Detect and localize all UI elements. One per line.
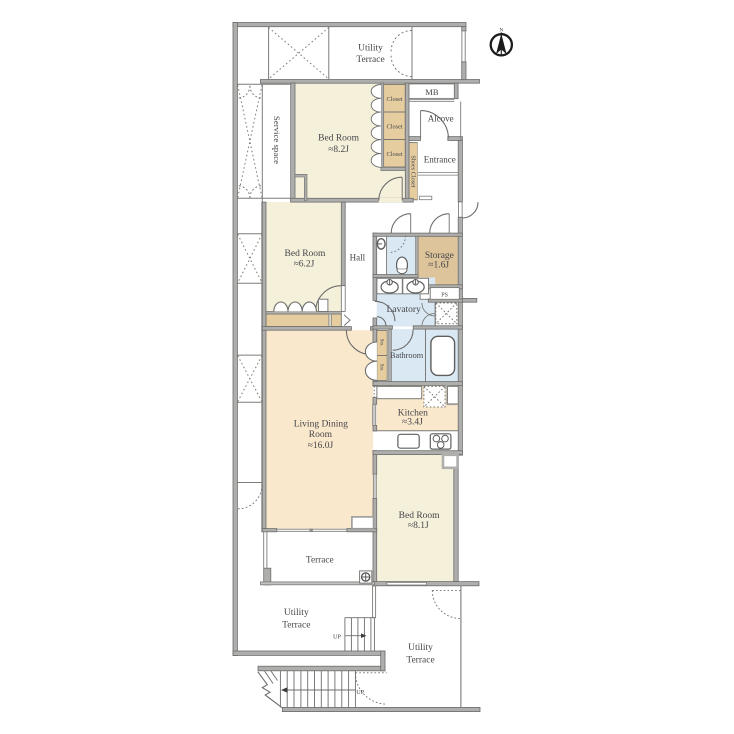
svg-text:Bathroom: Bathroom bbox=[390, 351, 424, 360]
svg-text:MB: MB bbox=[425, 87, 439, 97]
svg-text:Living Dining: Living Dining bbox=[294, 420, 348, 430]
svg-text:Utility: Utility bbox=[358, 44, 383, 54]
svg-text:UP: UP bbox=[356, 689, 364, 696]
svg-text:Entrance: Entrance bbox=[424, 155, 456, 165]
svg-text:≈6.2J: ≈6.2J bbox=[294, 260, 315, 270]
svg-text:Closet: Closet bbox=[387, 151, 403, 158]
svg-text:≈3.4J: ≈3.4J bbox=[402, 418, 423, 428]
svg-text:Alcove: Alcove bbox=[428, 113, 454, 123]
svg-text:Closet: Closet bbox=[387, 123, 403, 130]
svg-text:≈16.0J: ≈16.0J bbox=[308, 441, 334, 451]
svg-text:Terrace: Terrace bbox=[406, 656, 434, 666]
svg-text:Lavatory: Lavatory bbox=[387, 305, 422, 315]
svg-text:Room: Room bbox=[309, 430, 333, 440]
svg-text:PS: PS bbox=[441, 292, 448, 298]
svg-text:Service space: Service space bbox=[272, 116, 282, 164]
svg-text:Utility: Utility bbox=[284, 608, 309, 618]
svg-text:Terrace: Terrace bbox=[356, 55, 384, 65]
svg-text:Bed Room: Bed Room bbox=[399, 511, 441, 521]
svg-text:Sto.: Sto. bbox=[378, 364, 383, 372]
svg-text:Terrace: Terrace bbox=[282, 621, 310, 631]
svg-text:Hall: Hall bbox=[350, 253, 366, 263]
svg-text:UP: UP bbox=[333, 634, 341, 641]
svg-text:Storage: Storage bbox=[425, 251, 454, 261]
svg-text:N: N bbox=[499, 28, 503, 34]
svg-text:Shoes Closet: Shoes Closet bbox=[409, 155, 416, 187]
svg-text:Closet: Closet bbox=[387, 96, 403, 103]
svg-text:Terrace: Terrace bbox=[306, 556, 334, 566]
svg-text:Utility: Utility bbox=[408, 643, 433, 653]
svg-text:Sto.: Sto. bbox=[378, 339, 383, 347]
svg-text:≈1.6J: ≈1.6J bbox=[428, 261, 449, 271]
svg-text:≈8.2J: ≈8.2J bbox=[328, 145, 349, 155]
svg-text:≈8.1J: ≈8.1J bbox=[408, 521, 429, 531]
svg-text:Bed Room: Bed Room bbox=[285, 249, 327, 259]
svg-text:Bed Room: Bed Room bbox=[318, 134, 360, 144]
